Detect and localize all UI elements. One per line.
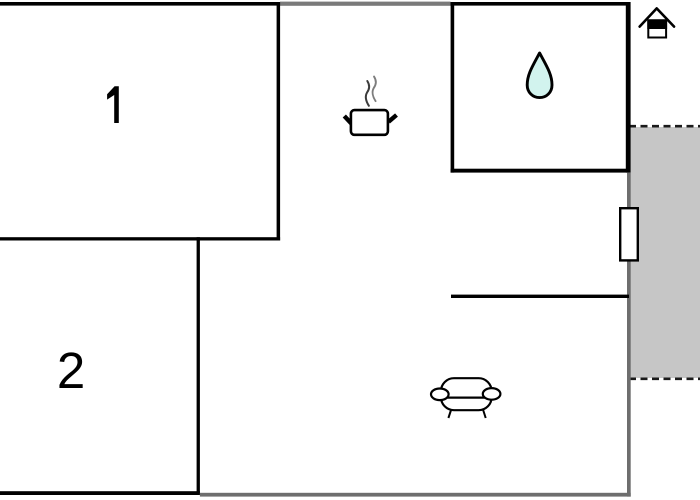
svg-text:2: 2 <box>57 342 85 399</box>
